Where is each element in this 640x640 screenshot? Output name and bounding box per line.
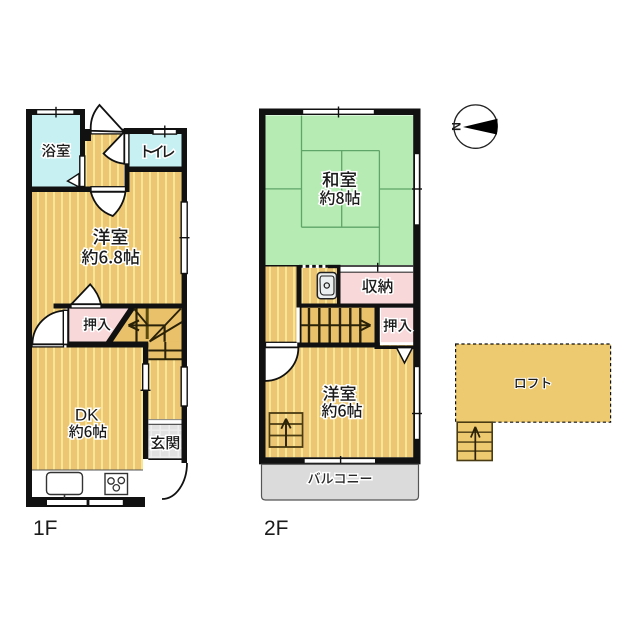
svg-text:2F: 2F [264,517,289,540]
svg-text:DK: DK [75,406,99,425]
svg-text:N: N [450,122,464,131]
svg-text:1F: 1F [33,517,58,540]
